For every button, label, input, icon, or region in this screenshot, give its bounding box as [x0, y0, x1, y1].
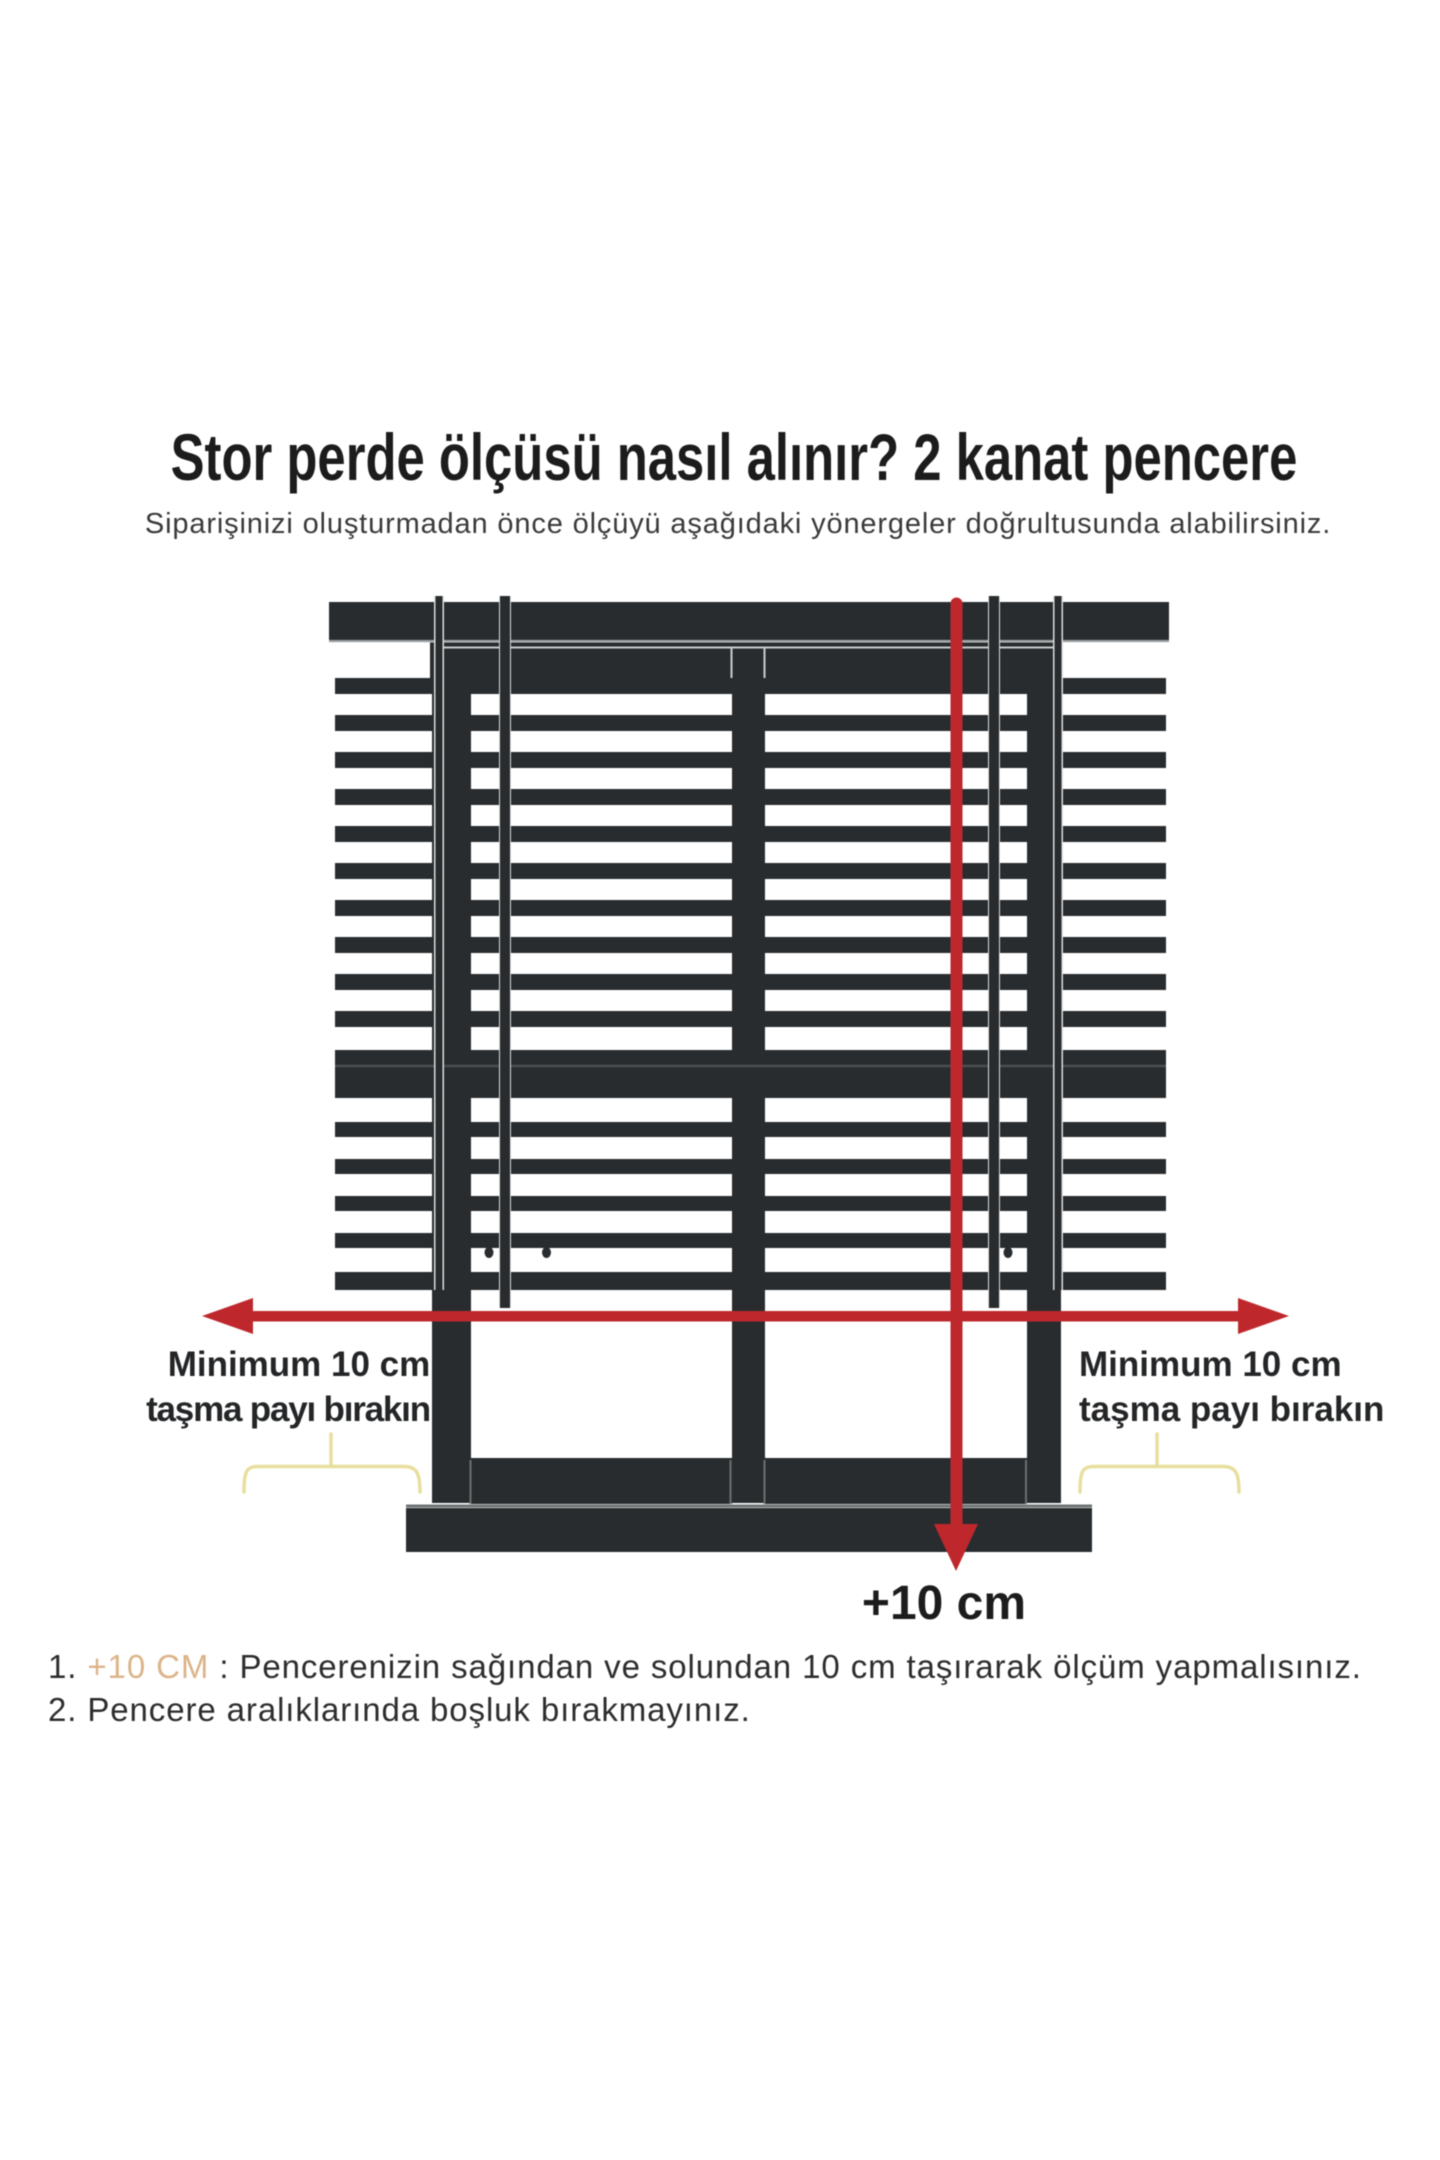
- svg-text:1. +10 CM : Pencerenizin sağın: 1. +10 CM : Pencerenizin sağından ve sol…: [48, 1648, 1362, 1685]
- svg-text:taşma payı bırakın: taşma payı bırakın: [1079, 1390, 1384, 1429]
- svg-text:Minimum 10 cm: Minimum 10 cm: [1079, 1345, 1342, 1384]
- svg-text:+10 cm: +10 cm: [862, 1577, 1026, 1630]
- svg-text:2. Pencere aralıklarında boşlu: 2. Pencere aralıklarında boşluk bırakmay…: [48, 1691, 751, 1728]
- svg-text:Stor perde ölçüsü nasıl alınır: Stor perde ölçüsü nasıl alınır? 2 kanat …: [171, 422, 1298, 495]
- svg-text:Minimum 10 cm: Minimum 10 cm: [168, 1345, 431, 1384]
- svg-text:Siparişinizi oluşturmadan önce: Siparişinizi oluşturmadan önce ölçüyü aş…: [145, 508, 1331, 540]
- svg-text:taşma payı bırakın: taşma payı bırakın: [146, 1390, 430, 1429]
